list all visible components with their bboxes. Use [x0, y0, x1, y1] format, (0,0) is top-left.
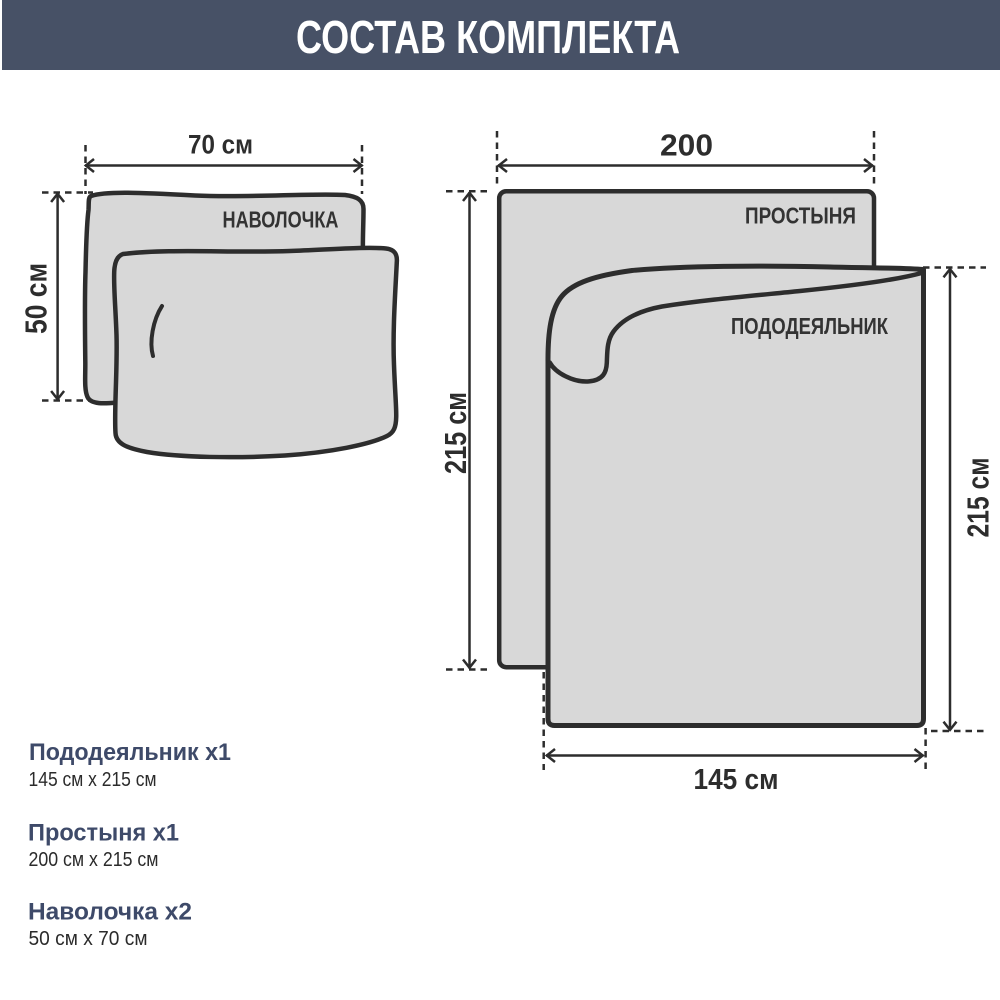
svg-text:215 см: 215 см: [438, 392, 473, 474]
svg-text:Наволочка x2: Наволочка x2: [28, 899, 192, 926]
svg-text:215 см: 215 см: [961, 458, 996, 538]
svg-text:ПОДОДЕЯЛЬНИК: ПОДОДЕЯЛЬНИК: [731, 313, 889, 339]
svg-text:СОСТАВ КОМПЛЕКТА: СОСТАВ КОМПЛЕКТА: [296, 11, 680, 63]
svg-text:200: 200: [660, 128, 713, 163]
svg-text:Пододеяльник x1: Пододеяльник x1: [29, 739, 231, 766]
svg-text:145 см: 145 см: [694, 764, 779, 796]
svg-text:145 см x 215 см: 145 см x 215 см: [29, 768, 157, 791]
svg-text:50 см x 70 см: 50 см x 70 см: [29, 927, 148, 950]
svg-text:Простыня x1: Простыня x1: [28, 820, 179, 847]
svg-text:ПРОСТЫНЯ: ПРОСТЫНЯ: [745, 203, 856, 229]
svg-text:70 см: 70 см: [188, 130, 253, 160]
svg-text:НАВОЛОЧКА: НАВОЛОЧКА: [223, 207, 339, 233]
svg-text:50 см: 50 см: [19, 263, 54, 334]
svg-text:200 см x 215 см: 200 см x 215 см: [29, 848, 159, 871]
